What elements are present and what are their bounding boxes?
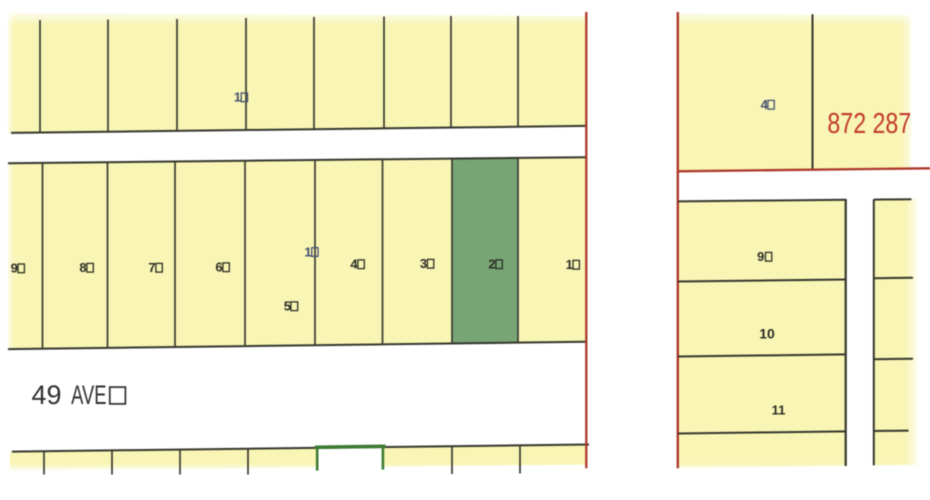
svg-text:49: 49 [32,380,62,410]
svg-text:9: 9 [757,249,764,264]
svg-text:8: 8 [79,260,86,275]
svg-text:1: 1 [304,244,311,259]
svg-text:5: 5 [284,299,291,314]
svg-text:10: 10 [759,326,775,342]
svg-text:11: 11 [772,402,786,417]
svg-text:1: 1 [566,257,573,272]
svg-text:3: 3 [420,256,427,271]
svg-text:6: 6 [215,260,222,275]
svg-text:872 287: 872 287 [827,106,911,139]
svg-text:1: 1 [234,90,241,105]
svg-text:2: 2 [488,257,495,272]
svg-text:9: 9 [11,261,18,276]
svg-text:7: 7 [148,260,155,275]
svg-text:4: 4 [350,257,358,272]
svg-text:AVE: AVE [71,380,106,410]
